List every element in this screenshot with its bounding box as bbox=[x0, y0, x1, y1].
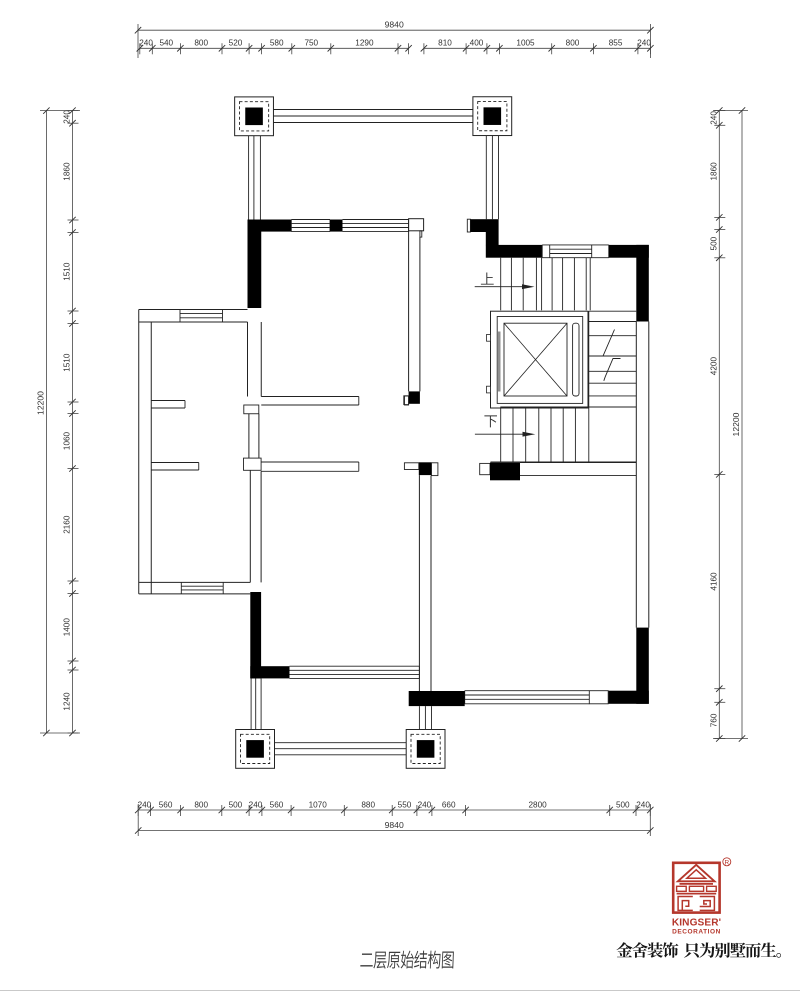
svg-text:1860: 1860 bbox=[709, 162, 718, 181]
svg-text:500: 500 bbox=[616, 800, 630, 809]
svg-text:1860: 1860 bbox=[63, 162, 72, 181]
svg-text:810: 810 bbox=[438, 39, 452, 48]
svg-text:750: 750 bbox=[304, 39, 318, 48]
svg-text:1070: 1070 bbox=[309, 800, 328, 809]
svg-text:9840: 9840 bbox=[385, 20, 404, 30]
svg-text:560: 560 bbox=[270, 800, 284, 809]
svg-text:500: 500 bbox=[229, 800, 243, 809]
svg-text:500: 500 bbox=[709, 236, 718, 250]
svg-text:240: 240 bbox=[138, 800, 152, 809]
svg-text:KINGSER': KINGSER' bbox=[672, 917, 721, 928]
svg-text:240: 240 bbox=[63, 110, 72, 124]
svg-text:560: 560 bbox=[159, 800, 173, 809]
svg-text:540: 540 bbox=[159, 39, 173, 48]
svg-text:2800: 2800 bbox=[528, 800, 547, 809]
svg-text:4160: 4160 bbox=[709, 572, 718, 591]
svg-text:12200: 12200 bbox=[731, 412, 741, 436]
svg-text:1290: 1290 bbox=[355, 39, 374, 48]
svg-text:1400: 1400 bbox=[63, 618, 72, 637]
svg-text:2160: 2160 bbox=[63, 515, 72, 534]
svg-text:400: 400 bbox=[470, 39, 484, 48]
svg-text:1510: 1510 bbox=[63, 262, 72, 281]
svg-text:9840: 9840 bbox=[385, 820, 404, 830]
svg-text:240: 240 bbox=[636, 800, 650, 809]
svg-text:520: 520 bbox=[229, 39, 243, 48]
svg-text:4200: 4200 bbox=[709, 357, 718, 376]
svg-text:240: 240 bbox=[637, 39, 651, 48]
svg-text:760: 760 bbox=[709, 713, 718, 727]
svg-text:240: 240 bbox=[418, 800, 432, 809]
svg-text:800: 800 bbox=[194, 39, 208, 48]
svg-text:855: 855 bbox=[609, 39, 623, 48]
svg-text:DECORATION: DECORATION bbox=[672, 929, 721, 936]
svg-text:660: 660 bbox=[442, 800, 456, 809]
svg-text:R: R bbox=[724, 860, 729, 867]
svg-text:1060: 1060 bbox=[63, 431, 72, 450]
svg-text:580: 580 bbox=[270, 39, 284, 48]
svg-text:240: 240 bbox=[709, 111, 718, 125]
svg-text:240: 240 bbox=[249, 800, 263, 809]
svg-text:240: 240 bbox=[139, 39, 153, 48]
svg-text:550: 550 bbox=[398, 800, 412, 809]
svg-text:1510: 1510 bbox=[63, 353, 72, 372]
svg-text:880: 880 bbox=[361, 800, 375, 809]
svg-text:12200: 12200 bbox=[36, 391, 46, 415]
svg-text:800: 800 bbox=[194, 800, 208, 809]
svg-text:1005: 1005 bbox=[516, 39, 535, 48]
svg-text:1240: 1240 bbox=[63, 692, 72, 711]
svg-text:800: 800 bbox=[566, 39, 580, 48]
